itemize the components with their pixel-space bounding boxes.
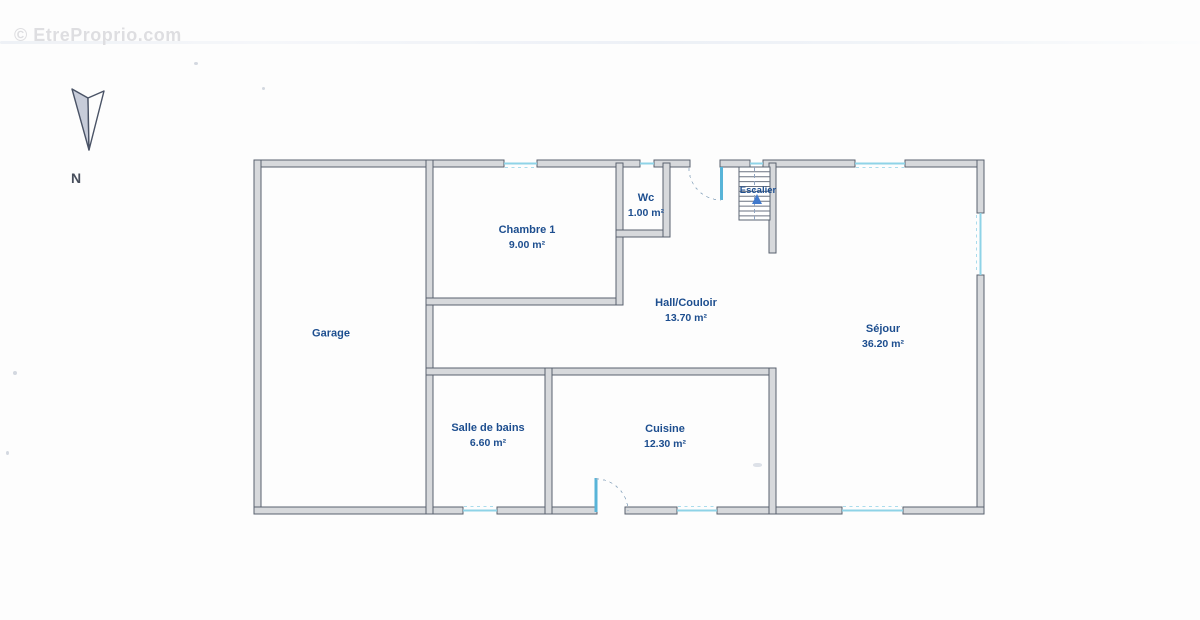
kitchen-door: [596, 478, 628, 512]
room-label-hall-couloir: Hall/Couloir 13.70 m²: [655, 296, 717, 326]
room-name: Hall/Couloir: [655, 297, 717, 309]
room-name: Wc: [638, 192, 655, 204]
interior-walls: [426, 160, 776, 514]
room-name: Chambre 1: [499, 224, 556, 236]
room-label-cuisine: Cuisine 12.30 m²: [644, 422, 686, 452]
room-name: Escalier: [740, 185, 776, 196]
room-name: Séjour: [866, 323, 900, 335]
room-area: 13.70 m²: [665, 312, 707, 324]
room-label-sejour: Séjour 36.20 m²: [862, 322, 904, 352]
room-label-garage: Garage: [312, 327, 350, 342]
room-label-wc: Wc 1.00 m²: [628, 191, 664, 221]
room-area: 36.20 m²: [862, 338, 904, 350]
room-label-salle-de-bains: Salle de bains 6.60 m²: [451, 421, 524, 451]
room-area: 9.00 m²: [509, 239, 545, 251]
room-area: 12.30 m²: [644, 438, 686, 450]
room-area: 1.00 m²: [628, 207, 664, 219]
room-label-escalier: Escalier: [740, 186, 776, 196]
room-area: 6.60 m²: [470, 437, 506, 449]
room-name: Garage: [312, 328, 350, 340]
entrance-door: [689, 167, 722, 200]
floor-plan: [0, 0, 1200, 620]
room-name: Salle de bains: [451, 422, 524, 434]
room-label-chambre-1: Chambre 1 9.00 m²: [499, 223, 556, 253]
room-name: Cuisine: [645, 423, 685, 435]
